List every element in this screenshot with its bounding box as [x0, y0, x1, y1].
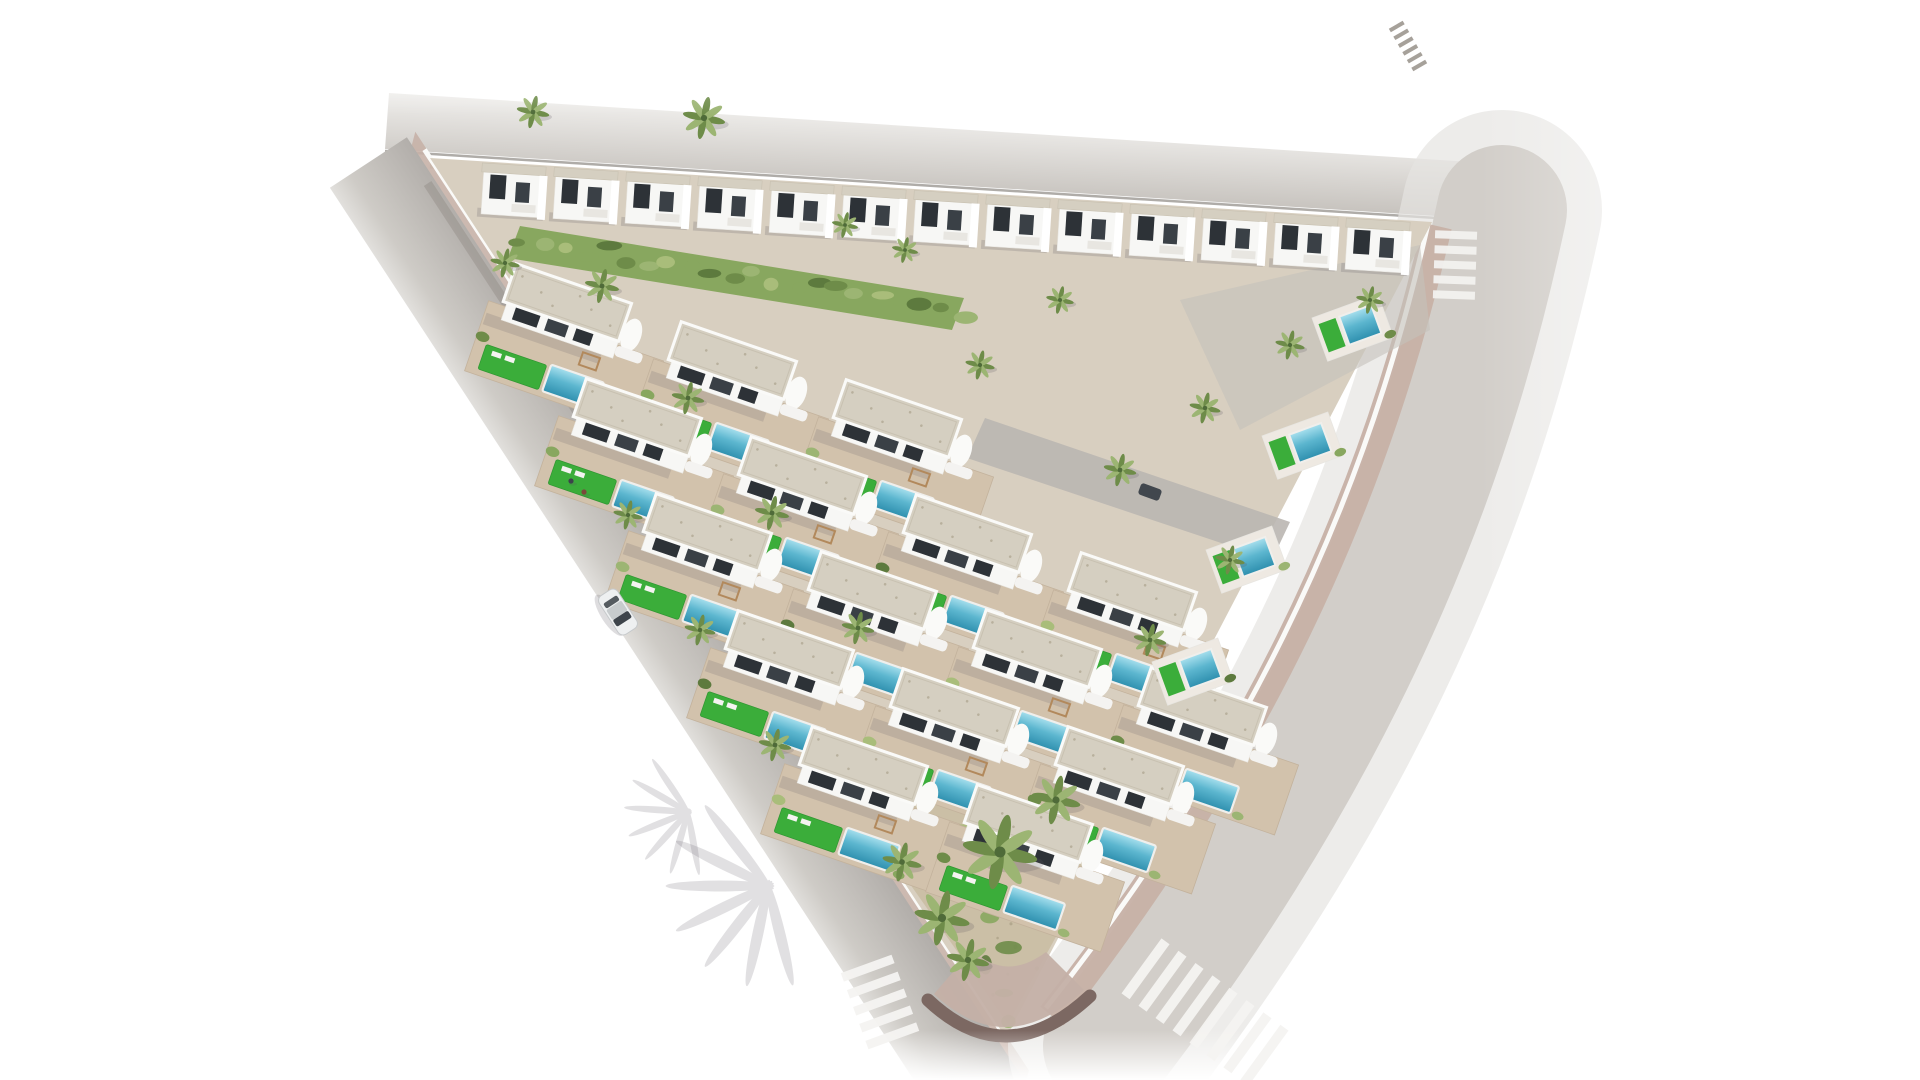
slope-bush — [907, 298, 932, 311]
slope-bush — [656, 256, 675, 268]
garden-bush — [995, 941, 1022, 954]
townhouse-window — [1019, 214, 1034, 235]
pedestrian-figure — [581, 489, 586, 494]
slope-bush — [872, 291, 894, 299]
fade-bottom — [0, 1030, 1920, 1080]
townhouse-window — [1379, 237, 1394, 258]
palm-crown — [843, 223, 847, 227]
garden-speckle — [1009, 922, 1012, 925]
palm-crown — [1288, 343, 1292, 347]
palm-crown — [994, 846, 1005, 857]
palm-crown — [938, 914, 946, 922]
townhouse-window — [1065, 211, 1083, 236]
slope-bush — [844, 288, 863, 299]
townhouse-window — [1163, 224, 1178, 245]
townhouse — [1053, 200, 1124, 258]
garden-speckle — [996, 937, 999, 940]
palm-crown — [978, 363, 982, 367]
slope-bush — [559, 243, 573, 253]
palm-crown — [1118, 468, 1123, 473]
townhouse-window — [803, 201, 818, 222]
townhouse — [621, 172, 692, 230]
scene-root — [0, 0, 1920, 1080]
palm-crown — [1052, 796, 1059, 803]
townhouse-window — [1281, 225, 1299, 250]
townhouse-window — [633, 184, 651, 209]
townhouse-balcony — [727, 218, 751, 228]
palm-crown — [686, 396, 691, 401]
palm-crown — [701, 115, 707, 121]
townhouse-balcony — [655, 213, 679, 223]
slope-bush — [575, 252, 598, 262]
development-site-svg: Aerial render of triangular white-villa … — [0, 0, 1920, 1080]
slope-bush — [725, 273, 745, 284]
palm-crown — [965, 957, 971, 963]
slope-bush — [792, 282, 806, 294]
townhouse-window — [1091, 219, 1106, 240]
townhouse — [693, 177, 764, 235]
palm-crown — [773, 743, 778, 748]
townhouse-balcony — [583, 208, 607, 218]
townhouse-window — [1209, 220, 1227, 245]
townhouse-window — [489, 174, 507, 199]
townhouse-window — [659, 191, 674, 212]
slope-bush — [617, 257, 636, 269]
townhouse-window — [1307, 233, 1322, 254]
townhouse-window — [947, 210, 962, 231]
townhouse — [981, 195, 1052, 253]
palm-crown — [1203, 406, 1208, 411]
slope-bush — [639, 261, 659, 271]
townhouse-balcony — [1231, 250, 1255, 260]
townhouse-balcony — [943, 231, 967, 241]
slope-bush — [933, 303, 949, 312]
townhouse — [549, 167, 620, 225]
townhouse-balcony — [799, 222, 823, 232]
townhouse-balcony — [1015, 236, 1039, 246]
crosswalk-stripe — [1435, 230, 1477, 239]
slope-bush — [824, 281, 848, 291]
slope-bush — [764, 278, 779, 291]
townhouse-window — [561, 179, 579, 204]
palm-crown — [903, 248, 907, 252]
slope-bush — [742, 266, 760, 277]
palm-crown — [626, 513, 630, 517]
townhouse-window — [921, 202, 939, 227]
slope-bush — [536, 238, 554, 251]
crosswalk-stripe — [1433, 290, 1475, 299]
townhouse-balcony — [1159, 245, 1183, 255]
townhouse-balcony — [1375, 259, 1399, 269]
palm-crown — [1058, 298, 1062, 302]
palm-crown — [1368, 298, 1372, 302]
townhouse-window — [875, 205, 890, 226]
townhouse-balcony — [511, 204, 535, 214]
townhouse-balcony — [871, 227, 895, 237]
crosswalk-stripe — [1434, 245, 1476, 254]
townhouse-balcony — [1303, 254, 1327, 264]
fade-top — [0, 0, 1920, 115]
townhouse-window — [1235, 228, 1250, 249]
townhouse — [477, 163, 548, 221]
townhouse-balcony — [1087, 241, 1111, 251]
palm-crown — [769, 510, 774, 515]
palm-crown — [599, 283, 604, 288]
townhouse-window — [1137, 216, 1155, 241]
palm-crown — [1228, 558, 1232, 562]
townhouse-window — [777, 193, 795, 218]
townhouse-window — [587, 187, 602, 208]
slope-bush — [685, 260, 700, 272]
crosswalk-stripe — [1434, 260, 1476, 269]
townhouse-window — [1353, 230, 1371, 255]
townhouse-window — [705, 188, 723, 213]
slope-bush — [596, 241, 622, 250]
townhouse — [1197, 209, 1268, 267]
palm-crown — [856, 626, 861, 631]
townhouse — [1341, 218, 1412, 276]
fade-right — [1480, 0, 1920, 1080]
slope-bush — [954, 311, 978, 324]
slope-bush — [508, 238, 525, 246]
townhouse-window — [731, 196, 746, 217]
townhouse — [1125, 204, 1196, 262]
slope-bush — [698, 269, 722, 278]
townhouse-window — [515, 182, 530, 203]
townhouse-window — [993, 207, 1011, 232]
palm-crown — [503, 261, 507, 265]
palm-crown — [698, 628, 703, 633]
crosswalk-stripe — [1433, 275, 1475, 284]
townhouse — [1269, 213, 1340, 271]
townhouse — [765, 181, 836, 239]
aerial-render: Aerial render of triangular white-villa … — [0, 0, 1920, 1080]
palm-crown — [1148, 638, 1153, 643]
pedestrian-figure — [568, 478, 573, 483]
townhouse — [909, 190, 980, 248]
palm-crown — [899, 859, 905, 865]
